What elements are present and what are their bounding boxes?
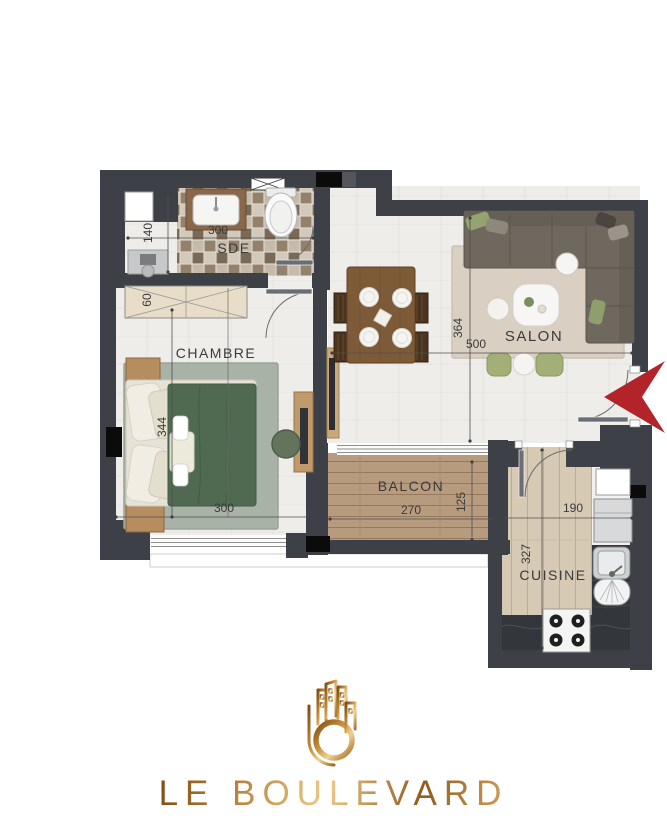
pouf-green <box>487 353 511 376</box>
dim-wardrobe-60: 60 <box>140 293 154 307</box>
dim-cuisine-327: 327 <box>519 544 533 564</box>
dim-cuisine-190: 190 <box>563 501 583 515</box>
nook-monitor <box>140 254 156 265</box>
shaft-left <box>106 427 122 457</box>
cuisine-sink <box>593 547 630 605</box>
shaft-right <box>630 485 646 498</box>
wall-sde-right <box>314 170 330 290</box>
wall-balcon-bottom <box>306 540 510 554</box>
coffee-table-small <box>487 298 509 320</box>
nook-chair <box>142 265 154 277</box>
plate <box>393 289 412 308</box>
door-stop <box>630 420 640 427</box>
salon-balcon-window <box>337 443 488 455</box>
door-stop <box>515 441 522 448</box>
dim-balcon-125: 125 <box>454 492 468 512</box>
dim-chambre-344: 344 <box>155 417 169 437</box>
duct-white-topleft <box>125 192 153 221</box>
shaft-balcon <box>306 536 330 552</box>
side-table <box>556 253 578 275</box>
pouf-table <box>513 353 535 375</box>
label-chambre: CHAMBRE <box>176 345 257 361</box>
cuisine-window <box>596 469 630 495</box>
label-cuisine: CUISINE <box>519 567 586 583</box>
wall-right-lower <box>630 425 652 670</box>
brand-name: LE BOULEVARD <box>159 774 509 814</box>
plate <box>360 288 379 307</box>
door-stop <box>630 366 640 373</box>
dim-salon-364: 364 <box>451 318 465 338</box>
stove <box>543 609 590 652</box>
fridge <box>594 499 632 542</box>
desk-nook <box>128 250 168 277</box>
accent-pillow <box>173 464 188 486</box>
label-sde: SDE <box>217 240 250 256</box>
wall-cuisine-left <box>488 465 502 665</box>
shaft-top <box>316 172 342 187</box>
bed <box>125 380 256 506</box>
poufs <box>487 353 563 376</box>
dim-salon-500: 500 <box>466 337 486 351</box>
brand-logo: LE BOULEVARD <box>0 672 667 814</box>
exterior-sill <box>150 554 488 567</box>
dim-chambre-300: 300 <box>214 501 234 515</box>
shaft-top-gray <box>342 172 356 187</box>
dim-sde-140: 140 <box>141 223 155 243</box>
plate <box>393 329 412 348</box>
sde-toilet <box>265 188 297 237</box>
wall-corner-chambre-balcon <box>286 533 308 558</box>
cuisine-floor <box>502 447 592 615</box>
wall-below-sde-right <box>312 273 330 288</box>
dim-sde-300: 300 <box>208 223 228 237</box>
label-salon: SALON <box>505 328 563 345</box>
accent-pillow <box>173 416 188 440</box>
wall-cuisine-bottom <box>488 650 652 668</box>
door-stop <box>566 441 573 448</box>
chambre-window <box>151 535 286 549</box>
wall-left-column <box>108 186 125 278</box>
plate <box>360 328 379 347</box>
pouf-green <box>536 353 563 376</box>
dim-balcon-270: 270 <box>401 503 421 517</box>
dining-set <box>334 267 428 363</box>
chambre-chair <box>272 430 300 458</box>
buildings-ring-icon <box>288 672 380 772</box>
wall-chambre-right <box>313 288 327 448</box>
label-balcon: BALCON <box>378 478 445 494</box>
